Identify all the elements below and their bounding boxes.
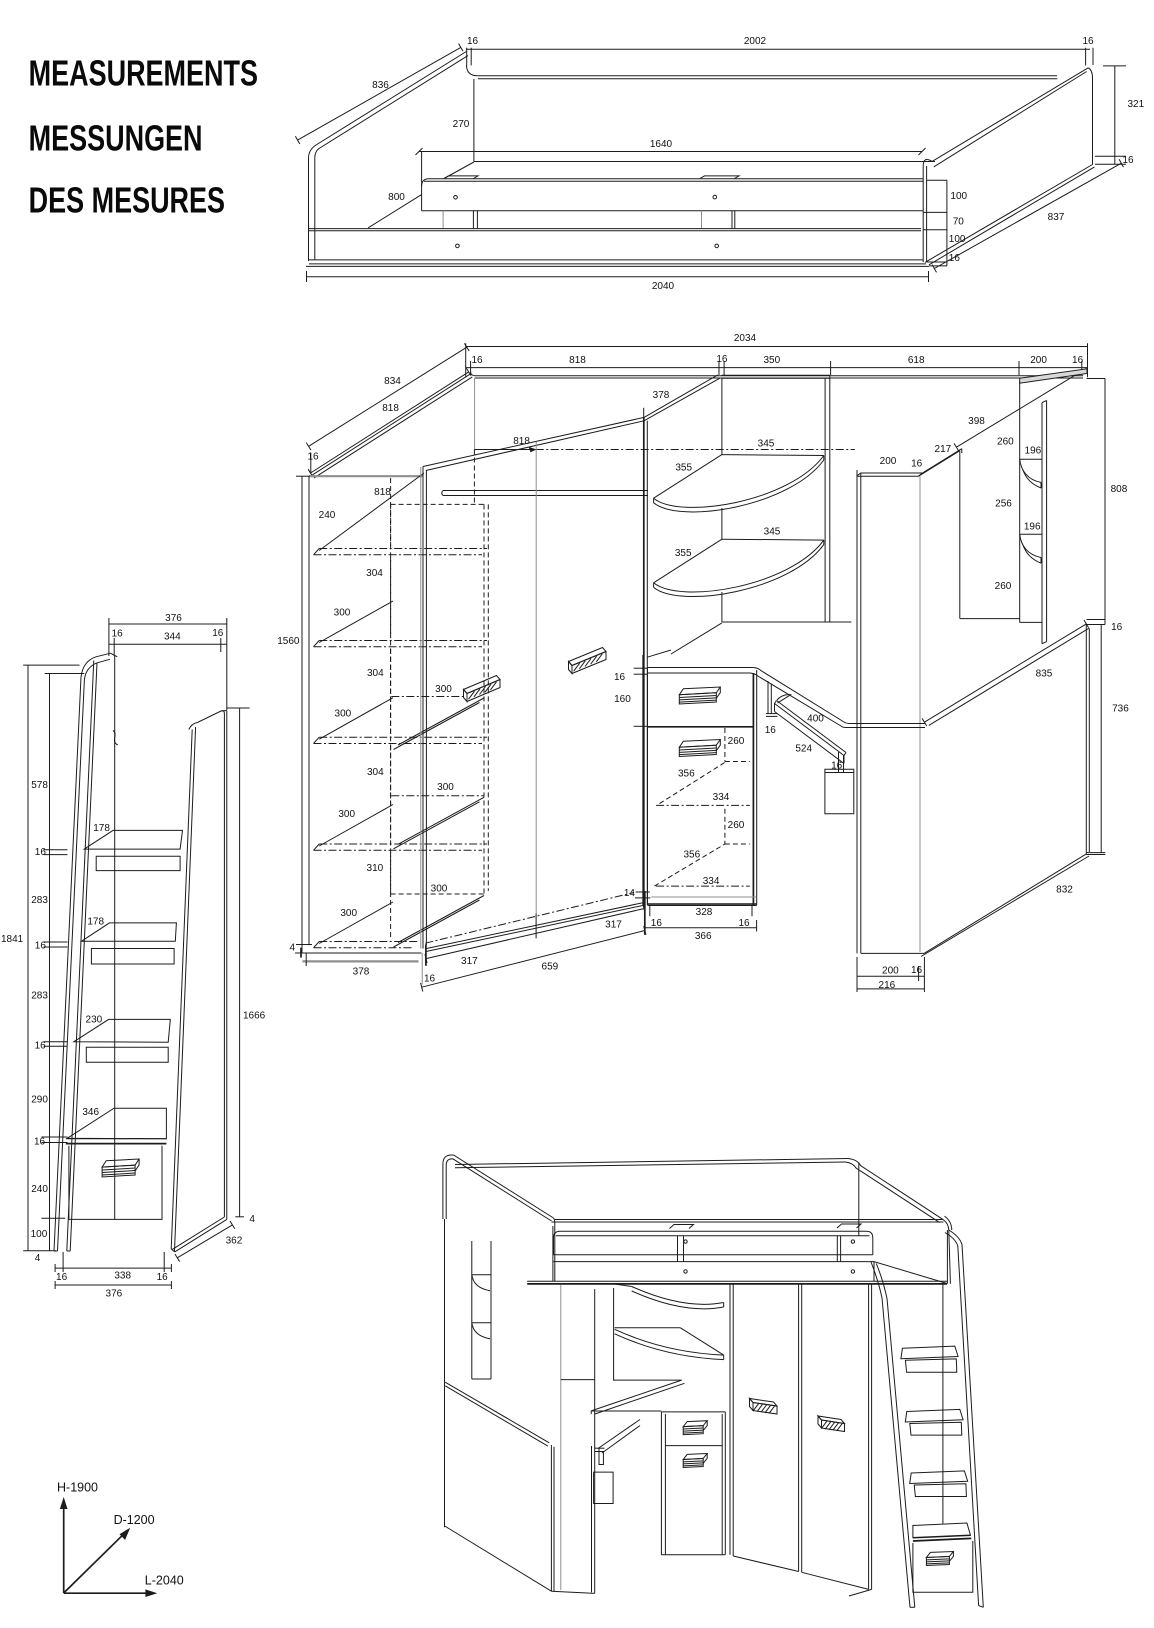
svg-text:800: 800 — [388, 192, 405, 203]
svg-text:304: 304 — [367, 767, 384, 778]
svg-text:260: 260 — [728, 736, 745, 747]
svg-text:160: 160 — [614, 694, 631, 705]
svg-text:16: 16 — [157, 1272, 169, 1283]
svg-text:260: 260 — [995, 581, 1012, 592]
svg-text:16: 16 — [424, 974, 436, 985]
svg-text:H-1900: H-1900 — [57, 1481, 98, 1495]
svg-text:100: 100 — [950, 191, 967, 202]
svg-text:16: 16 — [614, 672, 626, 683]
svg-text:16: 16 — [738, 918, 750, 929]
svg-text:16: 16 — [212, 628, 224, 639]
svg-text:16: 16 — [307, 452, 319, 463]
svg-text:300: 300 — [340, 908, 357, 919]
svg-text:16: 16 — [34, 1137, 46, 1148]
svg-text:837: 837 — [1048, 212, 1065, 223]
svg-text:16: 16 — [911, 459, 923, 470]
svg-text:328: 328 — [696, 907, 713, 918]
svg-text:818: 818 — [569, 355, 586, 366]
svg-text:D-1200: D-1200 — [114, 1513, 155, 1527]
svg-text:16: 16 — [35, 847, 47, 858]
svg-text:283: 283 — [31, 991, 48, 1002]
svg-text:16: 16 — [56, 1272, 68, 1283]
svg-text:366: 366 — [695, 931, 712, 942]
svg-text:4: 4 — [289, 943, 295, 954]
svg-text:355: 355 — [675, 463, 692, 474]
svg-text:16: 16 — [1111, 622, 1123, 633]
svg-text:310: 310 — [367, 863, 384, 874]
svg-text:300: 300 — [435, 684, 452, 695]
svg-text:178: 178 — [93, 823, 110, 834]
svg-text:344: 344 — [164, 632, 181, 643]
svg-text:260: 260 — [728, 820, 745, 831]
svg-text:260: 260 — [997, 436, 1014, 447]
svg-text:334: 334 — [703, 876, 720, 887]
svg-text:2034: 2034 — [734, 333, 757, 344]
svg-text:MEASUREMENTS: MEASUREMENTS — [29, 53, 258, 94]
svg-text:16: 16 — [112, 629, 124, 640]
svg-text:16: 16 — [35, 1041, 47, 1052]
svg-text:196: 196 — [1025, 446, 1042, 457]
svg-text:2040: 2040 — [652, 281, 675, 292]
svg-text:400: 400 — [807, 714, 824, 725]
svg-text:283: 283 — [31, 895, 48, 906]
svg-text:240: 240 — [31, 1184, 48, 1195]
svg-text:16: 16 — [1072, 355, 1084, 366]
svg-text:300: 300 — [431, 884, 448, 895]
svg-text:356: 356 — [683, 849, 700, 860]
svg-text:736: 736 — [1112, 704, 1129, 715]
svg-text:290: 290 — [31, 1095, 48, 1106]
svg-text:524: 524 — [795, 743, 812, 754]
svg-text:818: 818 — [374, 487, 391, 498]
svg-text:346: 346 — [82, 1107, 99, 1118]
svg-text:100: 100 — [949, 234, 966, 245]
svg-text:345: 345 — [764, 527, 781, 538]
svg-text:304: 304 — [367, 668, 384, 679]
svg-text:618: 618 — [908, 355, 925, 366]
svg-text:355: 355 — [675, 548, 692, 559]
svg-text:1560: 1560 — [277, 636, 300, 647]
svg-text:378: 378 — [353, 967, 370, 978]
svg-text:300: 300 — [338, 809, 355, 820]
svg-text:578: 578 — [31, 780, 48, 791]
svg-text:659: 659 — [542, 962, 559, 973]
svg-text:317: 317 — [605, 920, 622, 931]
svg-text:834: 834 — [384, 376, 401, 387]
svg-text:818: 818 — [513, 436, 530, 447]
svg-text:300: 300 — [437, 782, 454, 793]
svg-text:70: 70 — [953, 217, 965, 228]
svg-text:1666: 1666 — [243, 1011, 266, 1022]
svg-text:300: 300 — [335, 709, 352, 720]
svg-text:334: 334 — [713, 792, 730, 803]
svg-text:345: 345 — [758, 439, 775, 450]
svg-text:MESSUNGEN: MESSUNGEN — [29, 118, 203, 159]
svg-text:376: 376 — [165, 613, 182, 624]
svg-text:356: 356 — [678, 769, 695, 780]
svg-text:270: 270 — [453, 119, 470, 130]
svg-text:16: 16 — [1082, 36, 1094, 47]
svg-text:216: 216 — [879, 980, 896, 991]
svg-text:16: 16 — [949, 253, 961, 264]
svg-text:317: 317 — [461, 956, 478, 967]
svg-text:200: 200 — [880, 456, 897, 467]
svg-text:808: 808 — [1111, 484, 1128, 495]
svg-text:16: 16 — [911, 965, 923, 976]
svg-text:4: 4 — [35, 1253, 41, 1264]
svg-text:178: 178 — [87, 917, 104, 928]
svg-text:338: 338 — [114, 1271, 131, 1282]
svg-text:240: 240 — [319, 510, 336, 521]
svg-text:16: 16 — [467, 36, 479, 47]
svg-text:200: 200 — [882, 966, 899, 977]
svg-text:2002: 2002 — [744, 36, 767, 47]
svg-text:376: 376 — [106, 1289, 123, 1300]
svg-text:304: 304 — [366, 568, 383, 579]
svg-text:16: 16 — [35, 941, 47, 952]
svg-text:16: 16 — [831, 761, 843, 772]
svg-text:818: 818 — [382, 403, 399, 414]
svg-text:378: 378 — [653, 390, 670, 401]
svg-text:300: 300 — [334, 608, 351, 619]
svg-text:100: 100 — [31, 1229, 48, 1240]
svg-text:350: 350 — [763, 355, 780, 366]
svg-text:321: 321 — [1128, 99, 1145, 110]
svg-text:832: 832 — [1056, 885, 1073, 896]
svg-text:16: 16 — [765, 725, 777, 736]
svg-text:398: 398 — [968, 416, 985, 427]
svg-text:16: 16 — [471, 355, 483, 366]
svg-text:16: 16 — [651, 918, 663, 929]
svg-text:835: 835 — [1036, 669, 1053, 680]
svg-text:16: 16 — [1123, 155, 1135, 166]
svg-text:4: 4 — [249, 1214, 255, 1225]
svg-text:230: 230 — [86, 1015, 103, 1026]
svg-text:256: 256 — [995, 499, 1012, 510]
svg-text:DES MESURES: DES MESURES — [29, 180, 225, 221]
svg-text:1640: 1640 — [650, 139, 673, 150]
svg-text:L-2040: L-2040 — [145, 1574, 184, 1588]
svg-text:200: 200 — [1030, 355, 1047, 366]
svg-text:14: 14 — [624, 888, 636, 899]
svg-text:836: 836 — [372, 80, 389, 91]
svg-text:217: 217 — [935, 444, 952, 455]
svg-text:16: 16 — [716, 354, 728, 365]
svg-text:196: 196 — [1024, 522, 1041, 533]
svg-text:1841: 1841 — [1, 934, 24, 945]
svg-text:362: 362 — [226, 1236, 243, 1247]
